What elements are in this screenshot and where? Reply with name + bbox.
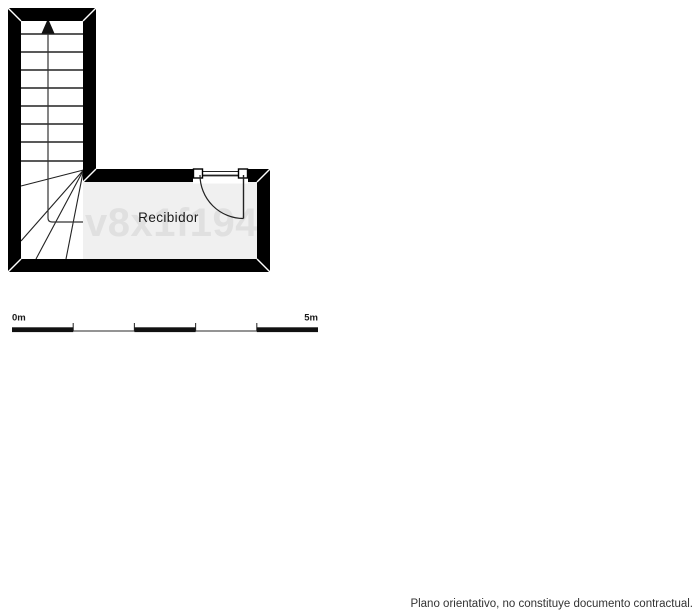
door-jamb-left — [194, 169, 203, 178]
scale-bar: 0m 5m — [12, 313, 318, 333]
disclaimer: Plano orientativo, no constituye documen… — [410, 598, 693, 610]
scale-label-start: 0m — [12, 313, 26, 324]
scale-segments — [12, 327, 318, 332]
scale-label-end: 5m — [304, 313, 318, 324]
floor-plan: v8x1f194 — [0, 0, 696, 616]
floor-plan-page: v8x1f194 — [0, 0, 696, 616]
room-label: Recibidor — [138, 210, 199, 225]
staircase-floor — [21, 21, 83, 259]
